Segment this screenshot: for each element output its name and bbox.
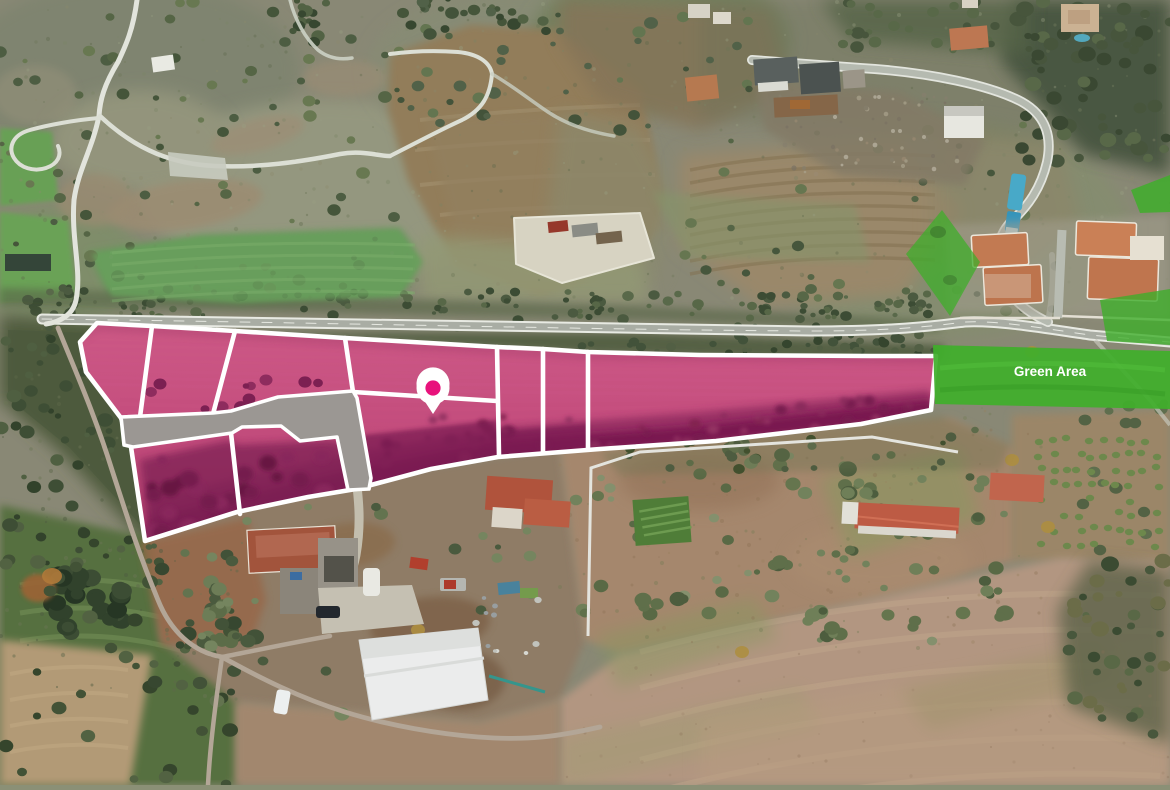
svg-text:Green Area: Green Area — [1014, 364, 1087, 379]
